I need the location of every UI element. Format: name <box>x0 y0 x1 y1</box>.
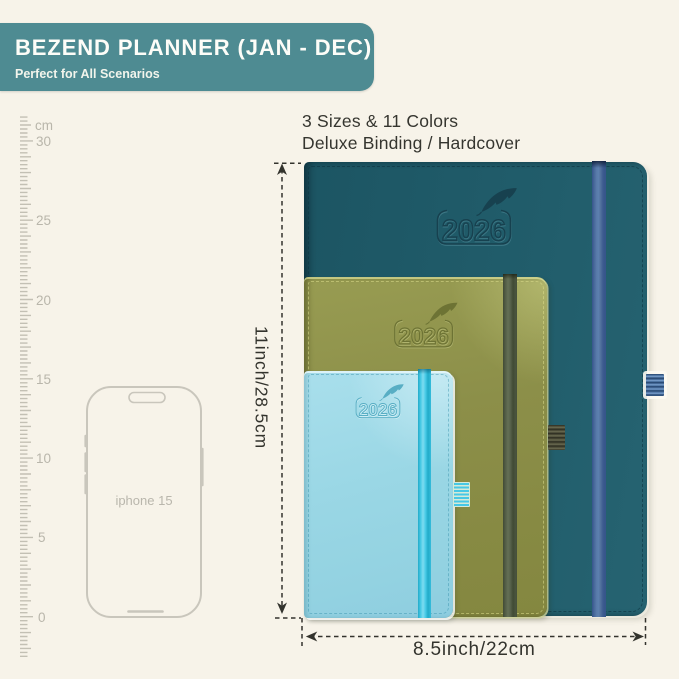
svg-text:30: 30 <box>36 134 51 149</box>
svg-text:20: 20 <box>36 293 51 308</box>
svg-text:2026: 2026 <box>398 323 449 349</box>
svg-text:cm: cm <box>35 118 53 133</box>
svg-text:25: 25 <box>36 213 51 228</box>
svg-text:2026: 2026 <box>359 400 398 420</box>
svg-text:5: 5 <box>38 530 46 545</box>
svg-text:iphone 15: iphone 15 <box>115 493 172 508</box>
svg-text:15: 15 <box>36 372 51 387</box>
svg-text:10: 10 <box>36 451 51 466</box>
svg-text:0: 0 <box>38 610 46 625</box>
svg-text:2026: 2026 <box>442 215 506 248</box>
